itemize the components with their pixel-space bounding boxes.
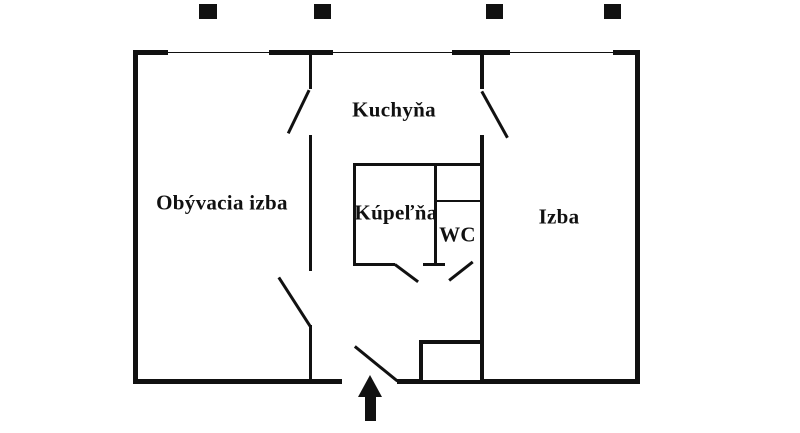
wall-bathroom-top bbox=[353, 163, 484, 166]
wall-outer-left bbox=[133, 50, 138, 384]
room-label-kupelna: Kúpeľňa bbox=[354, 200, 437, 225]
top-edge-artifact-3 bbox=[486, 4, 503, 19]
room-label-kuchyna: Kuchyňa bbox=[352, 97, 436, 122]
top-edge-artifact-1 bbox=[199, 4, 217, 19]
door-wc bbox=[448, 261, 473, 281]
door-livingroom-kitchen bbox=[286, 89, 309, 134]
floor-plan: Obývacia izba Kuchyňa Kúpeľňa WC Izba bbox=[0, 0, 800, 433]
wall-wc-shaft-divider bbox=[437, 200, 484, 203]
top-edge-artifact-2 bbox=[314, 4, 331, 19]
wall-livingroom-upper bbox=[309, 50, 313, 89]
wall-bathroom-bottom-left bbox=[353, 263, 395, 266]
wall-outer-top-2 bbox=[269, 50, 333, 55]
wall-izba-upper bbox=[480, 50, 484, 89]
hall-closet bbox=[419, 340, 484, 384]
room-label-obyvacia-izba: Obývacia izba bbox=[156, 190, 288, 215]
window-top-3 bbox=[510, 52, 613, 54]
wall-livingroom-lower bbox=[309, 325, 313, 379]
room-label-wc: WC bbox=[439, 222, 476, 247]
door-bathroom bbox=[394, 263, 419, 283]
door-izba bbox=[480, 90, 508, 137]
top-edge-artifact-4 bbox=[604, 4, 621, 19]
entrance-arrow-shaft bbox=[365, 395, 376, 421]
entrance-arrow-head bbox=[358, 375, 382, 397]
room-label-izba: Izba bbox=[539, 204, 580, 229]
wall-outer-top-1 bbox=[133, 50, 168, 55]
window-top-2 bbox=[333, 52, 452, 54]
wall-outer-top-4 bbox=[613, 50, 640, 55]
wall-outer-bottom-left bbox=[133, 379, 342, 384]
wall-outer-right bbox=[635, 50, 640, 384]
wall-livingroom-middle bbox=[309, 135, 313, 271]
door-livingroom-hall bbox=[278, 276, 312, 326]
window-top-1 bbox=[168, 52, 269, 54]
wall-bathroom-bottom-right bbox=[423, 263, 445, 266]
